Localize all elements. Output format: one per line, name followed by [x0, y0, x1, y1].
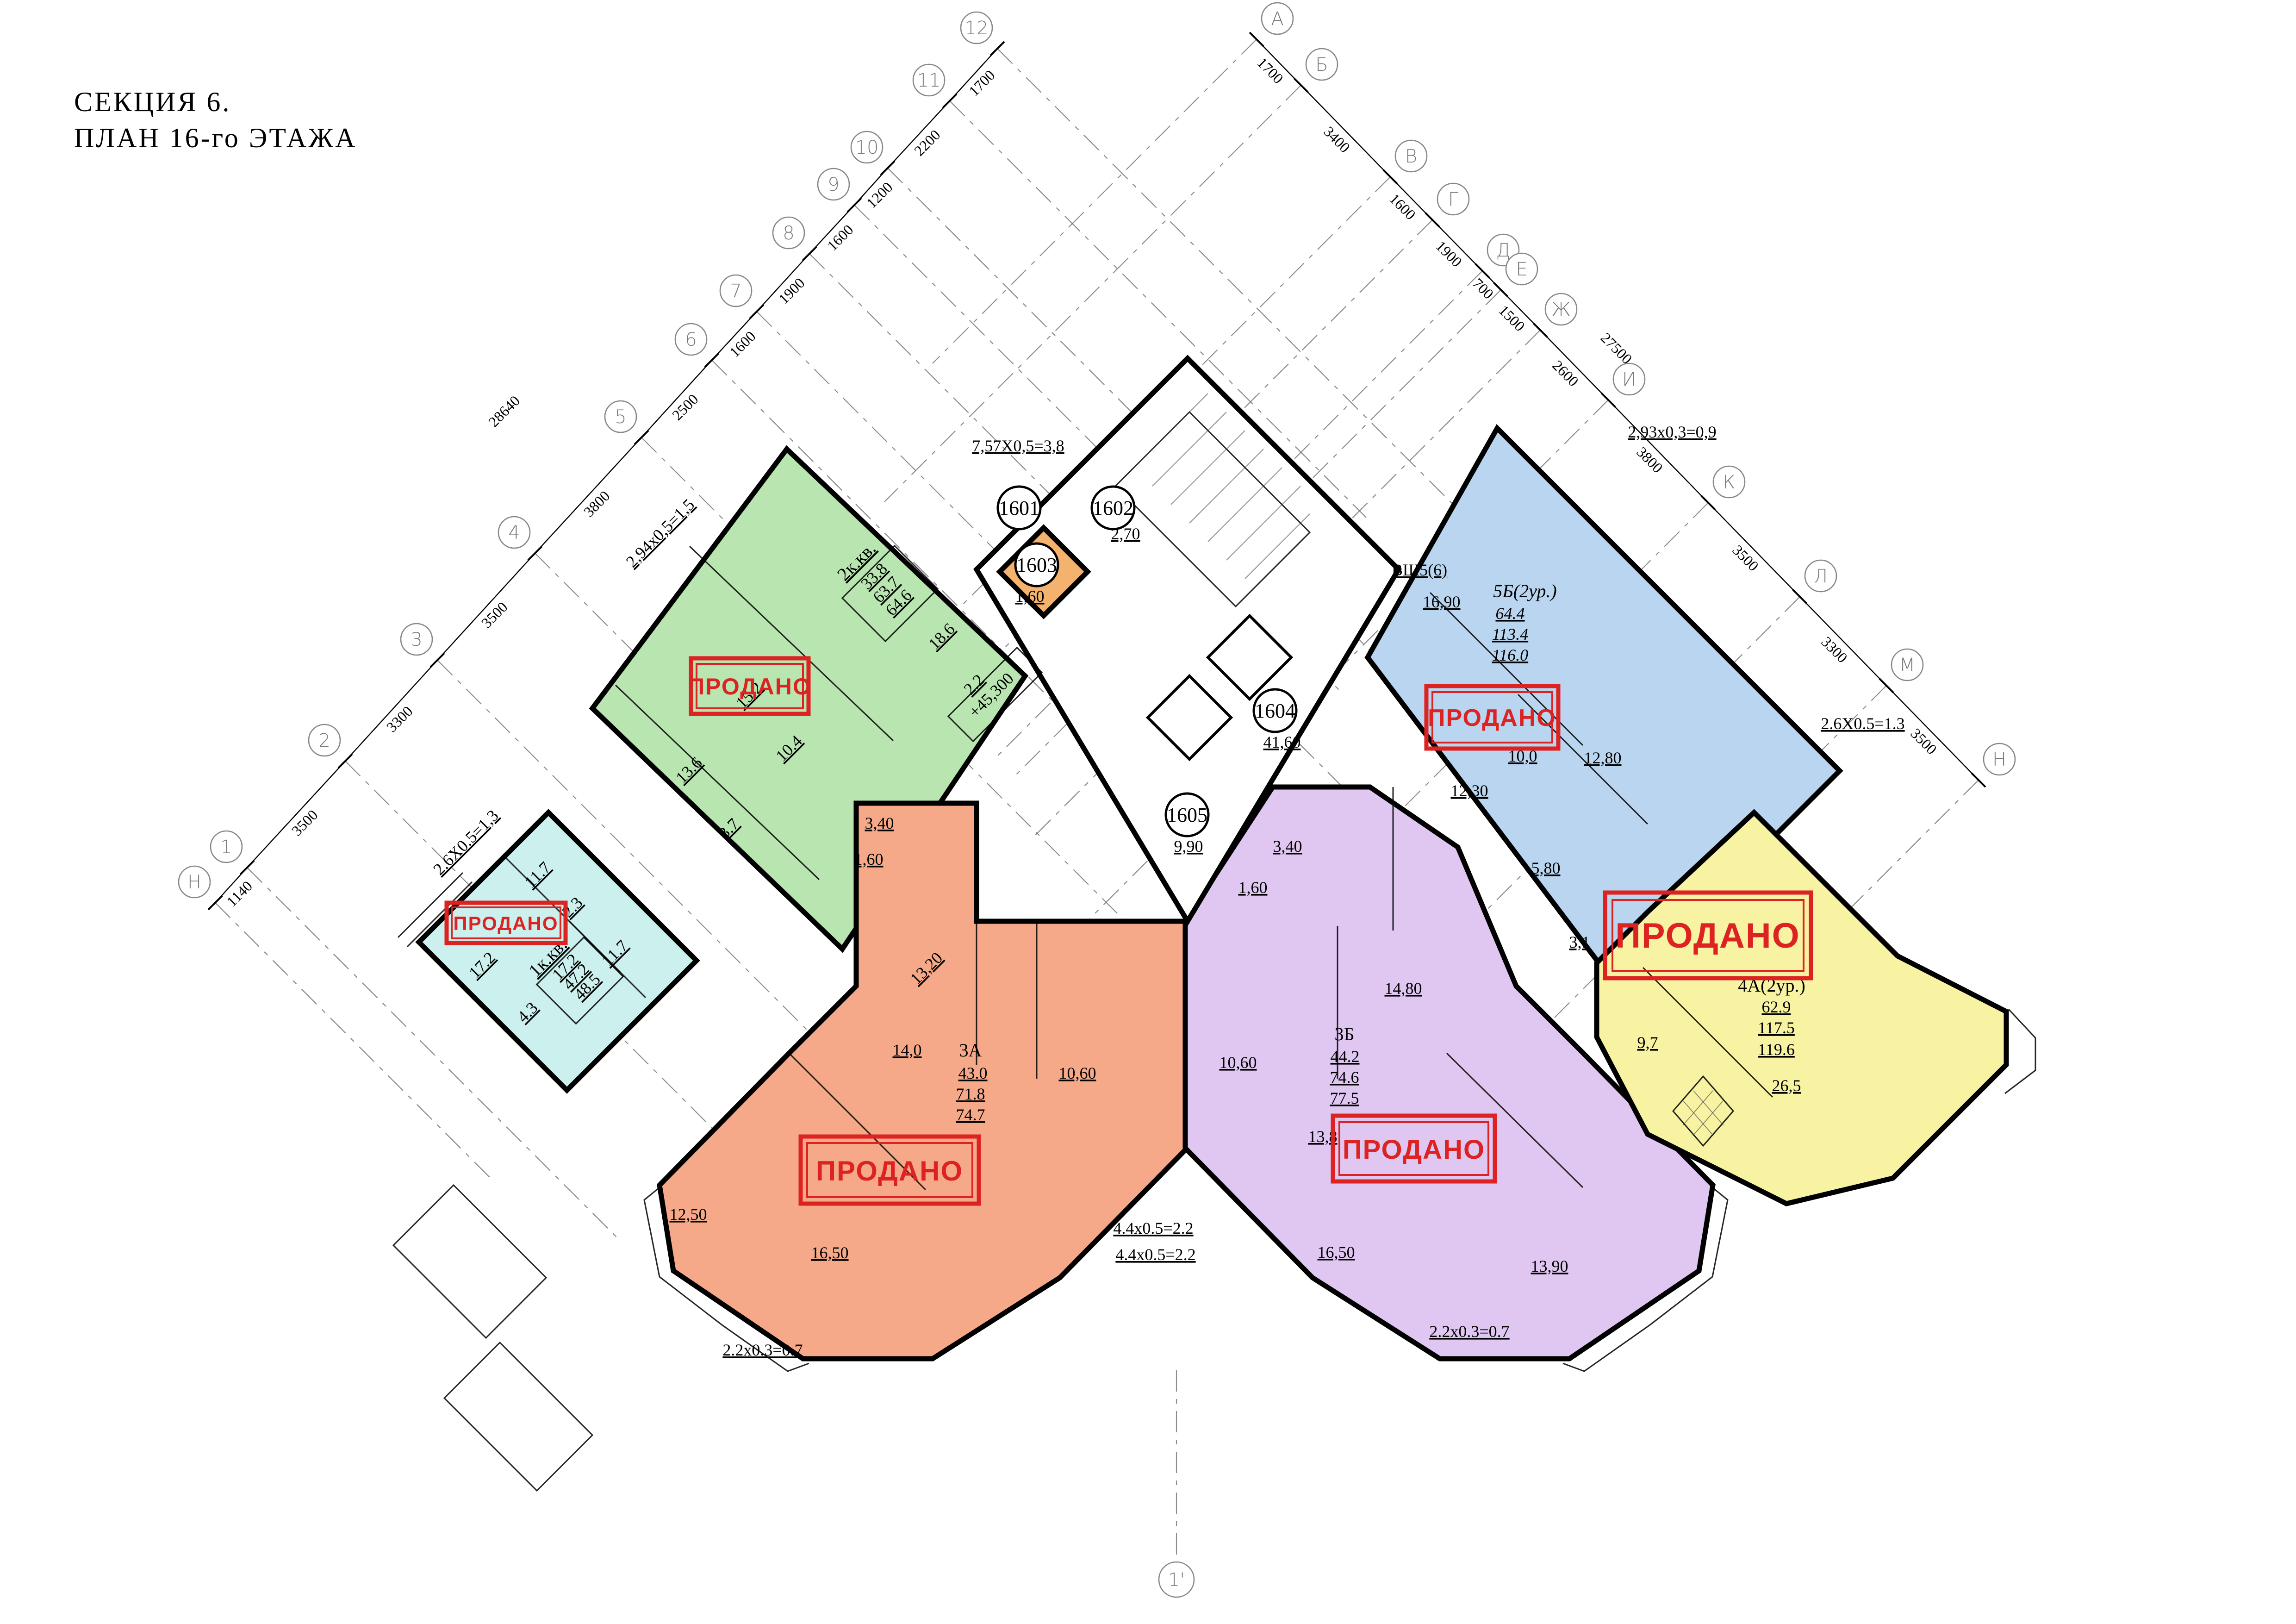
svg-text:44.2: 44.2	[1331, 1047, 1360, 1066]
svg-text:2600: 2600	[1549, 357, 1582, 390]
room-1601: 1601	[999, 497, 1039, 519]
axis-7: 7	[720, 275, 752, 306]
svg-text:Г: Г	[1448, 189, 1459, 210]
svg-text:Н: Н	[187, 872, 201, 893]
svg-text:8: 8	[783, 223, 794, 244]
axis-10: 10	[851, 131, 883, 163]
axis-l: Л	[1805, 560, 1836, 592]
svg-text:13,90: 13,90	[1531, 1257, 1568, 1275]
axis-k: К	[1713, 466, 1745, 498]
svg-text:14,80: 14,80	[1385, 979, 1422, 998]
svg-text:1': 1'	[1168, 1569, 1185, 1591]
svg-text:6: 6	[685, 329, 697, 350]
svg-text:74.7: 74.7	[956, 1106, 985, 1124]
axis-v: В	[1395, 140, 1427, 172]
svg-text:В: В	[1405, 146, 1417, 167]
svg-text:9,7: 9,7	[1637, 1033, 1658, 1052]
axis-n-left: Н	[179, 866, 210, 898]
svg-text:117.5: 117.5	[1758, 1018, 1795, 1037]
svg-text:10: 10	[855, 137, 879, 158]
svg-text:3300: 3300	[1818, 633, 1851, 666]
bottom-center-dims: 4.4х0.5=2.2 4.4х0.5=2.2	[1113, 1219, 1195, 1264]
svg-text:1600: 1600	[726, 328, 759, 361]
svg-text:9,90: 9,90	[1174, 837, 1203, 856]
svg-text:1200: 1200	[863, 179, 896, 212]
room-1605: 1605	[1167, 804, 1207, 826]
axis-2: 2	[309, 725, 340, 756]
svg-text:3,40: 3,40	[1273, 837, 1302, 856]
svg-text:5: 5	[615, 406, 626, 428]
svg-text:74.6: 74.6	[1330, 1068, 1359, 1087]
dim-44x05-b: 4.4х0.5=2.2	[1115, 1245, 1195, 1264]
axis-3: 3	[401, 624, 432, 655]
svg-text:3500: 3500	[1907, 725, 1940, 758]
room-1604: 1604	[1255, 700, 1295, 722]
svg-text:Л: Л	[1814, 566, 1828, 587]
svg-text:26,5: 26,5	[1772, 1076, 1801, 1095]
svg-text:Ж: Ж	[1551, 299, 1571, 320]
svg-text:3,1: 3,1	[1569, 933, 1590, 951]
svg-text:1700: 1700	[1254, 54, 1287, 87]
svg-text:И: И	[1622, 369, 1636, 390]
svg-text:Б: Б	[1315, 54, 1328, 75]
axis-6: 6	[675, 324, 707, 355]
dim-44x05-a: 4.4х0.5=2.2	[1113, 1219, 1193, 1237]
svg-text:2200: 2200	[911, 126, 944, 159]
svg-text:3800: 3800	[580, 487, 613, 520]
svg-text:41,60: 41,60	[1263, 733, 1301, 751]
svg-text:64.4: 64.4	[1496, 604, 1525, 623]
room-1603: 1603	[1016, 554, 1057, 576]
svg-text:1700: 1700	[965, 67, 998, 100]
axis-zh: Ж	[1545, 294, 1577, 325]
svg-text:9: 9	[828, 174, 839, 195]
purple-name: 3Б	[1335, 1024, 1355, 1044]
svg-text:4: 4	[508, 522, 520, 543]
svg-text:12,80: 12,80	[1584, 749, 1622, 767]
svg-text:116.0: 116.0	[1492, 646, 1528, 664]
room-1602: 1602	[1093, 497, 1133, 519]
svg-text:1,60: 1,60	[1015, 587, 1045, 606]
svg-text:12: 12	[965, 18, 989, 39]
svg-text:3500: 3500	[478, 599, 511, 631]
svg-text:1500: 1500	[1495, 302, 1528, 335]
svg-text:16,50: 16,50	[1318, 1243, 1355, 1262]
svg-text:1,60: 1,60	[854, 850, 884, 868]
svg-text:Е: Е	[1516, 259, 1527, 280]
svg-text:3: 3	[411, 629, 422, 650]
axis-12: 12	[961, 12, 992, 44]
svg-text:ПРОДАНО: ПРОДАНО	[688, 674, 812, 700]
svg-text:1900: 1900	[1432, 237, 1465, 270]
svg-text:1900: 1900	[775, 275, 808, 307]
svg-text:ПРОДАНО: ПРОДАНО	[1343, 1135, 1485, 1165]
top-dim: 7,57Х0,5=3,8	[972, 437, 1064, 455]
svg-text:ПРОДАНО: ПРОДАНО	[1615, 916, 1800, 956]
svg-text:3500: 3500	[1729, 542, 1762, 575]
floor-plan-canvas: Н 1 2 3 4 5 6 7 8 9 10 11 12 1140 3500 3…	[0, 0, 2296, 1624]
orange-balcony-dim: 2.2х0.3=0.7	[722, 1341, 803, 1359]
svg-text:1600: 1600	[824, 221, 857, 254]
svg-text:3,40: 3,40	[865, 814, 894, 832]
drawing-title: СЕКЦИЯ 6. ПЛАН 16-го ЭТАЖА	[74, 87, 357, 153]
svg-text:10,60: 10,60	[1059, 1064, 1096, 1082]
svg-text:3500: 3500	[288, 806, 321, 839]
svg-text:10,60: 10,60	[1220, 1053, 1257, 1072]
axis-a: А	[1262, 3, 1293, 34]
svg-text:3300: 3300	[383, 703, 416, 736]
green-balcony-dim: 2,94х0,5=1,5	[622, 495, 698, 571]
axis-n-right: Н	[1984, 743, 2015, 775]
axis-i: И	[1613, 363, 1645, 395]
svg-text:1: 1	[220, 837, 232, 858]
svg-text:1,60: 1,60	[1238, 878, 1268, 897]
axis-8: 8	[773, 217, 804, 249]
svg-text:14,0: 14,0	[893, 1041, 922, 1059]
purple-balcony-dim: 2.2х0.3=0.7	[1429, 1322, 1509, 1341]
title-line-1: СЕКЦИЯ 6.	[74, 87, 231, 117]
axis-4: 4	[498, 517, 530, 548]
svg-text:119.6: 119.6	[1758, 1040, 1795, 1059]
svg-text:5,80: 5,80	[1531, 859, 1561, 877]
svg-text:113.4: 113.4	[1492, 625, 1528, 643]
axis-m: М	[1892, 649, 1923, 681]
axis-b: Б	[1306, 49, 1338, 80]
svg-text:16,90: 16,90	[1423, 593, 1461, 611]
axis-9: 9	[818, 169, 849, 200]
svg-text:1600: 1600	[1386, 190, 1419, 223]
title-line-2: ПЛАН 16-го ЭТАЖА	[74, 123, 357, 153]
blue-name: 5Б(2ур.)	[1493, 581, 1556, 601]
axis-1: 1	[211, 831, 242, 862]
svg-text:11: 11	[917, 70, 941, 91]
svg-text:ПРОДАНО: ПРОДАНО	[1428, 705, 1556, 731]
svg-text:2500: 2500	[669, 391, 702, 424]
svg-text:3800: 3800	[1633, 443, 1666, 476]
svg-text:М: М	[1899, 655, 1916, 676]
svg-text:2: 2	[318, 730, 330, 751]
svg-text:А: А	[1271, 8, 1283, 30]
blue-balcony-dim: 2,93х0,3=0,9	[1628, 423, 1716, 441]
orange-name: 3А	[959, 1040, 982, 1061]
svg-text:7: 7	[730, 281, 741, 302]
svg-text:12,30: 12,30	[1451, 781, 1488, 800]
svg-text:28640: 28640	[485, 392, 523, 430]
svg-text:71.8: 71.8	[956, 1085, 985, 1103]
svg-text:Н: Н	[1992, 749, 2006, 770]
svg-text:К: К	[1723, 472, 1736, 493]
svg-text:2,70: 2,70	[1111, 525, 1140, 543]
svg-text:77.5: 77.5	[1330, 1089, 1359, 1107]
svg-text:43.0: 43.0	[958, 1064, 988, 1082]
yellow-balcony-dim: 2.6Х0.5=1.3	[1821, 714, 1904, 733]
unit-orange-3a[interactable]	[660, 803, 1187, 1359]
svg-text:27500: 27500	[1598, 329, 1636, 367]
axis-e: Е	[1506, 253, 1537, 285]
svg-text:12,50: 12,50	[670, 1205, 707, 1224]
svg-text:1140: 1140	[223, 877, 255, 910]
svg-text:ПРОДАНО: ПРОДАНО	[453, 912, 558, 934]
axis-g: Г	[1437, 183, 1469, 215]
svg-text:62.9: 62.9	[1762, 998, 1791, 1016]
svg-text:Д: Д	[1496, 240, 1510, 261]
blue-vsh-label: ВШ5(6)	[1392, 561, 1447, 579]
svg-text:16,50: 16,50	[811, 1243, 849, 1262]
svg-text:3400: 3400	[1320, 123, 1353, 156]
axis-5: 5	[605, 401, 636, 432]
svg-text:ПРОДАНО: ПРОДАНО	[816, 1156, 963, 1187]
axis-11: 11	[913, 64, 945, 96]
axis-1-prime: 1'	[1159, 1562, 1194, 1597]
